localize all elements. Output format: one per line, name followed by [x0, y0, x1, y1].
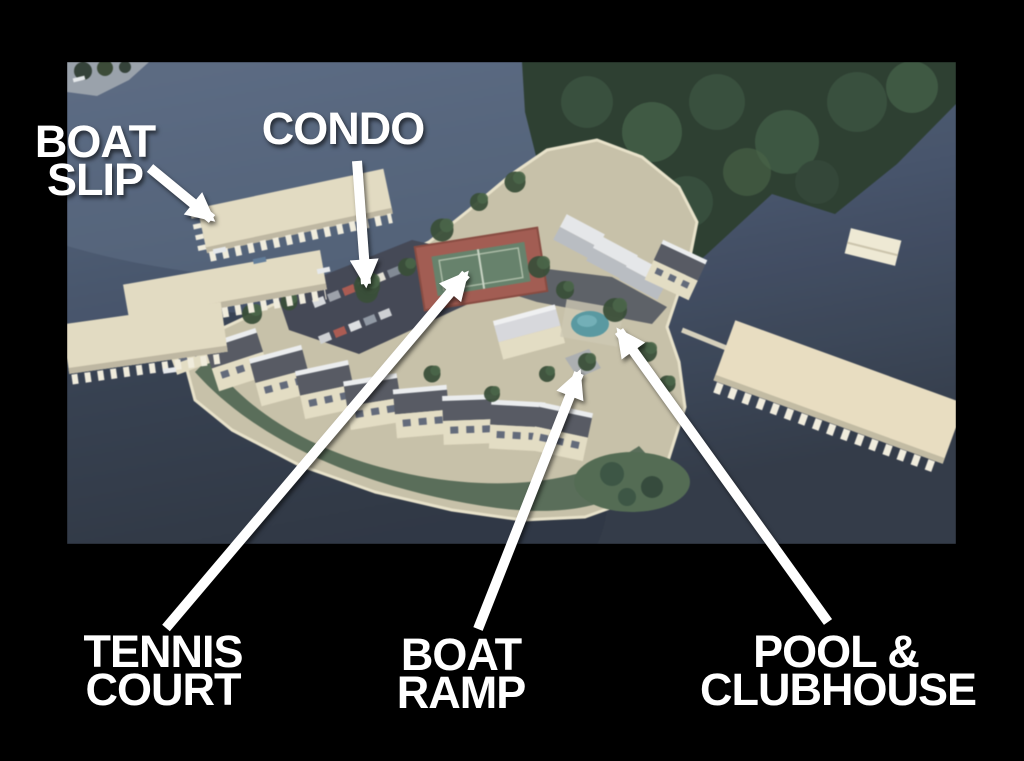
pool-clubhouse-label-line2: CLUBHOUSE — [700, 671, 972, 709]
aerial-photo-scene — [67, 62, 956, 544]
aerial-photo — [67, 62, 956, 544]
photo-grain — [67, 62, 956, 544]
tennis-court-label: TENNIS COURT — [52, 633, 274, 709]
condo-label: CONDO — [253, 110, 433, 148]
pool-clubhouse-label: POOL & CLUBHOUSE — [700, 633, 972, 709]
boat-ramp-label: BOAT RAMP — [350, 636, 572, 712]
annotated-aerial-photo-page: BOAT SLIP CONDO TENNIS COURT BOAT RAMP P… — [0, 0, 1024, 761]
boat-slip-label: BOAT SLIP — [15, 123, 175, 199]
condo-label-line1: CONDO — [253, 110, 433, 148]
boat-ramp-label-line2: RAMP — [350, 674, 572, 712]
